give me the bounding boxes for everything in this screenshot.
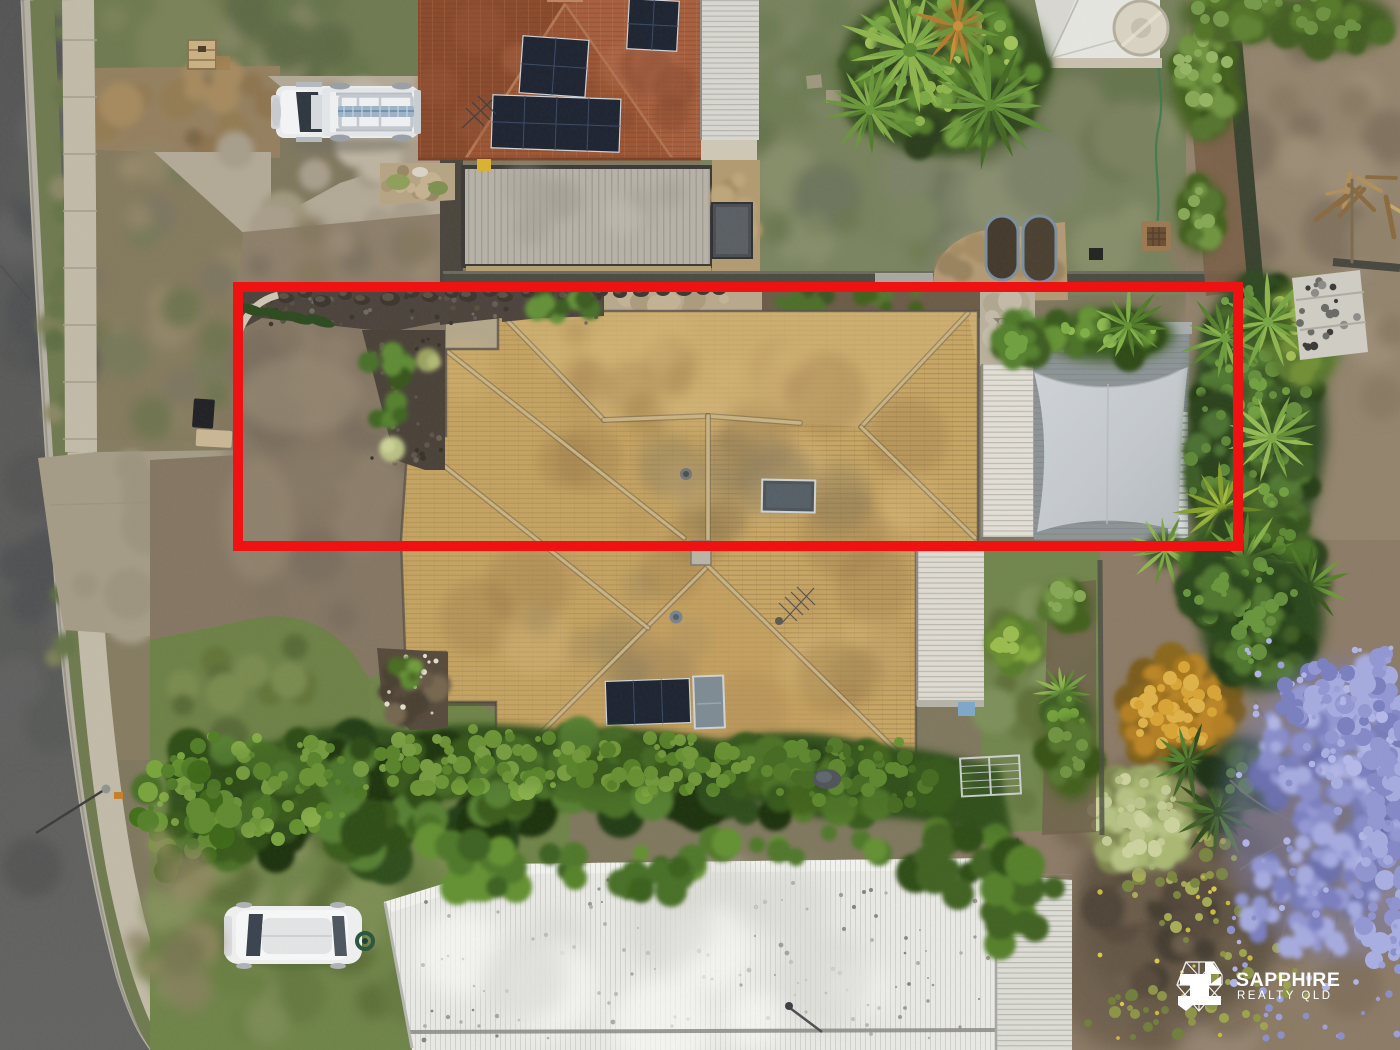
svg-text:REALTY QLD: REALTY QLD xyxy=(1237,990,1333,1002)
svg-text:SAPPHIRE: SAPPHIRE xyxy=(1236,969,1341,991)
